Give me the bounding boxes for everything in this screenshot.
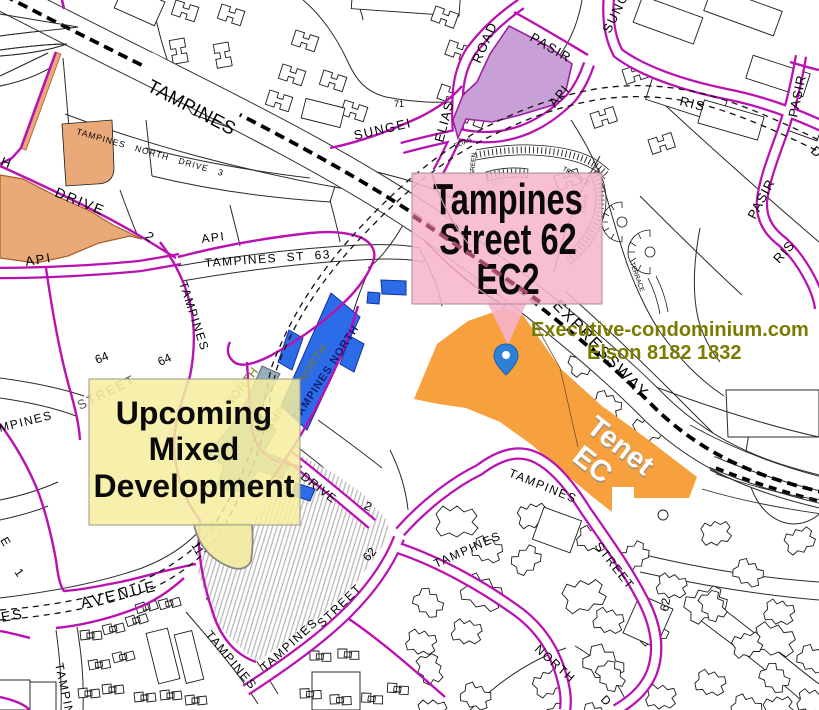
svg-text:API: API (201, 229, 226, 246)
svg-text:71: 71 (394, 99, 404, 109)
svg-text:Executive-condominium.com: Executive-condominium.com (531, 319, 809, 341)
svg-text:Elson 8182 1832: Elson 8182 1832 (587, 342, 742, 364)
svg-text:Upcoming: Upcoming (116, 395, 272, 431)
svg-text:Mixed: Mixed (149, 431, 240, 467)
svg-text:Development: Development (94, 468, 295, 504)
svg-text:62: 62 (657, 597, 673, 613)
